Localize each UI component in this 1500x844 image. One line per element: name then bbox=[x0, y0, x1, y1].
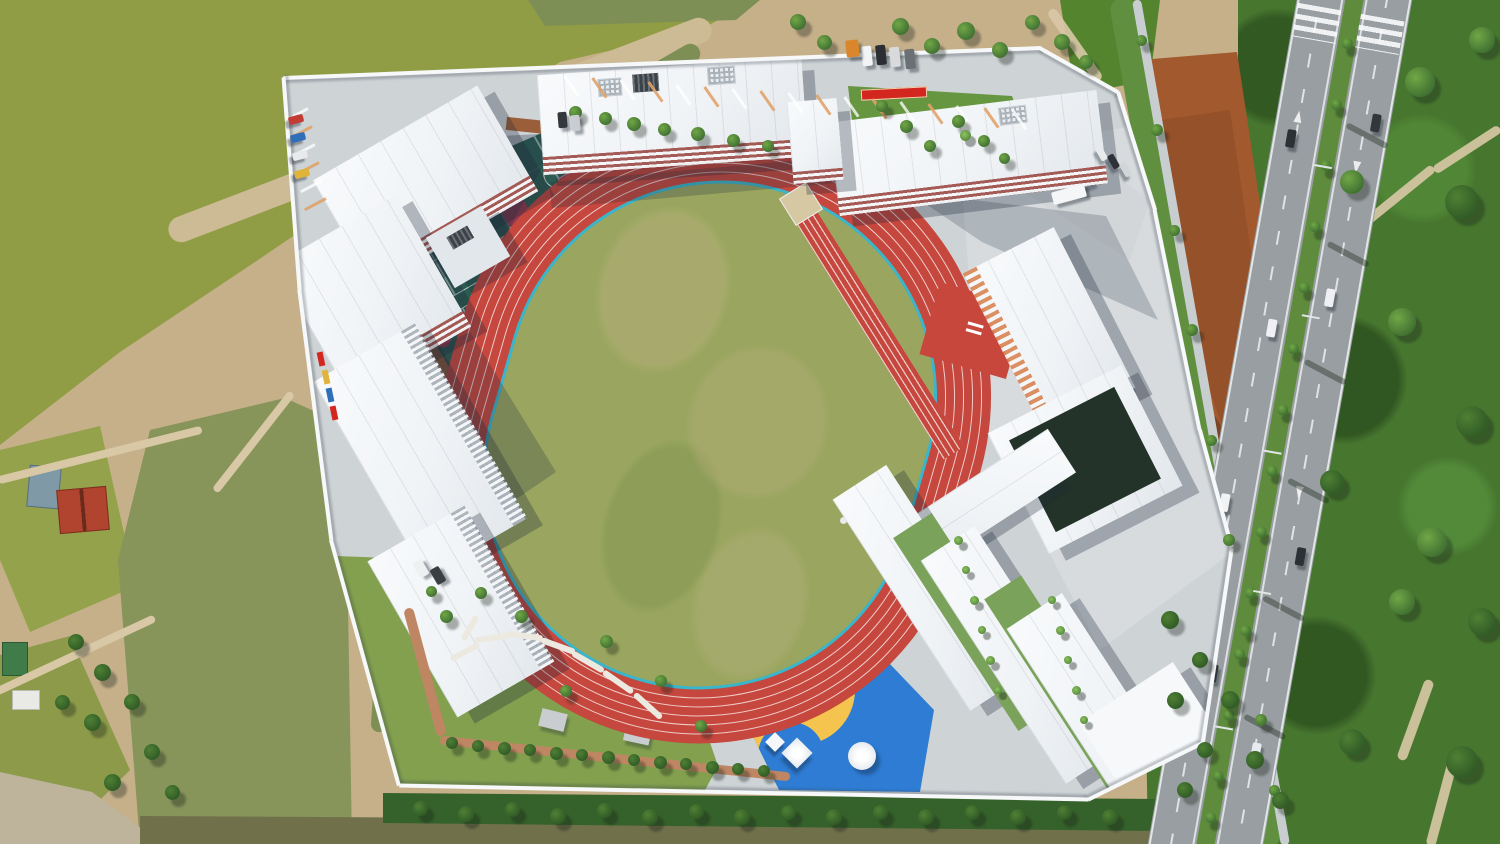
car bbox=[875, 45, 887, 66]
car bbox=[1107, 153, 1121, 169]
car bbox=[1051, 184, 1087, 205]
car bbox=[570, 115, 580, 132]
car bbox=[904, 49, 916, 70]
car bbox=[861, 46, 873, 67]
aerial-scene bbox=[0, 0, 1500, 844]
vehicle-layer bbox=[0, 0, 1500, 844]
car bbox=[557, 112, 567, 129]
car bbox=[294, 168, 311, 180]
car bbox=[889, 47, 901, 68]
car bbox=[292, 150, 309, 162]
car bbox=[1119, 161, 1133, 177]
car bbox=[412, 559, 429, 579]
car bbox=[845, 39, 860, 57]
car bbox=[429, 566, 446, 586]
car bbox=[288, 114, 305, 126]
car bbox=[1095, 145, 1109, 161]
car bbox=[290, 132, 307, 144]
